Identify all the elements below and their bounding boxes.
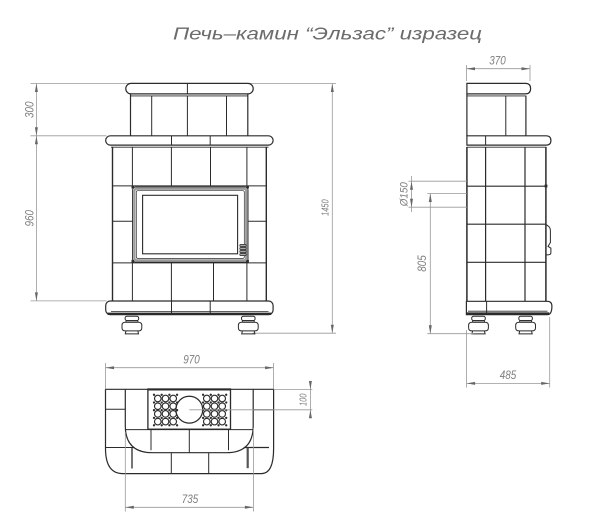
svg-text:735: 735 [182, 492, 199, 506]
svg-text:Ø150: Ø150 [399, 181, 411, 207]
svg-text:Печь–камин “Эльзас” изразец: Печь–камин “Эльзас” изразец [173, 23, 482, 43]
svg-text:485: 485 [500, 368, 517, 382]
svg-text:970: 970 [183, 353, 200, 367]
svg-text:100: 100 [299, 393, 310, 406]
svg-text:805: 805 [415, 255, 429, 272]
svg-text:370: 370 [489, 54, 506, 68]
svg-text:960: 960 [23, 210, 37, 227]
svg-text:1450: 1450 [319, 199, 331, 216]
svg-text:300: 300 [23, 101, 37, 118]
